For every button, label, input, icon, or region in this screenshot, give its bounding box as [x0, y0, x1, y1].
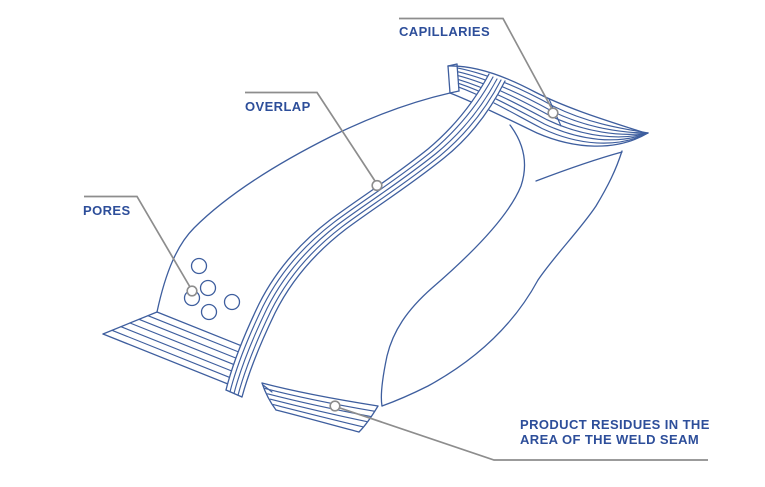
pore-circle	[201, 281, 216, 296]
leader-lines	[84, 19, 708, 461]
bottom-seam-right-left-edge	[262, 383, 276, 410]
bottom-seam-right-bottom-edge	[276, 410, 359, 432]
bottom-seam-hatch-line	[148, 316, 240, 353]
longitudinal-seam-left-edge	[226, 74, 489, 390]
capillaries-marker	[548, 108, 558, 118]
product-residues-label-line1: PRODUCT RESIDUES IN THE	[520, 417, 710, 432]
bag-drawing	[0, 0, 765, 487]
pore-circle	[202, 305, 217, 320]
fin-fold-left-edge	[448, 66, 450, 93]
pore-circle	[192, 259, 207, 274]
bottom-seam-hatch-line	[273, 405, 363, 427]
product-residues-marker	[330, 401, 340, 411]
pore-circle	[225, 295, 240, 310]
bottom-seam-hatch-line	[270, 399, 366, 421]
bag-right-edge	[382, 151, 622, 406]
fin-fold-bottom-edge	[450, 91, 459, 93]
bag-back-edge	[157, 93, 450, 312]
bottom-seam-bottom-edge	[103, 334, 228, 384]
overlap-label: OVERLAP	[245, 99, 311, 114]
bottom-seam-hatch-line	[112, 330, 231, 378]
product-residues-label-line2: AREA OF THE WELD SEAM	[520, 432, 699, 447]
capillaries-label: CAPILLARIES	[399, 24, 490, 39]
longitudinal-seam-body	[226, 74, 505, 397]
product-residues-label: PRODUCT RESIDUES IN THE AREA OF THE WELD…	[520, 417, 710, 447]
pores-marker	[187, 286, 197, 296]
bottom-weld-seam-left	[103, 312, 243, 384]
top-corner-crease	[536, 152, 622, 181]
weld-seam-defects-diagram: CAPILLARIES OVERLAP PORES PRODUCT RESIDU…	[0, 0, 765, 487]
overlap-marker	[372, 181, 382, 191]
pores-label: PORES	[83, 203, 131, 218]
bottom-seam-hatch-line	[265, 388, 374, 411]
front-gusset-fold	[381, 125, 524, 406]
bottom-seam-top-edge	[157, 312, 243, 346]
longitudinal-seam	[226, 74, 505, 397]
bottom-seam-hatch-line	[121, 327, 233, 372]
bottom-weld-seam-right	[262, 383, 378, 432]
bag-outline	[157, 93, 622, 406]
bottom-seam-right-top-edge	[262, 383, 378, 406]
